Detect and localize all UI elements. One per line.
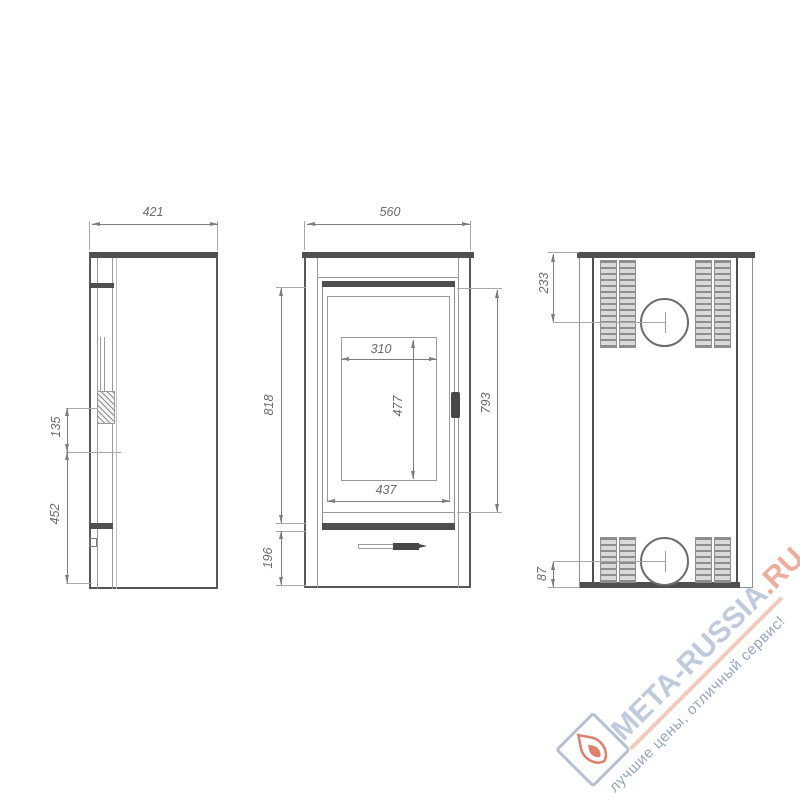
extension-line bbox=[553, 561, 666, 562]
back-side-panel-line bbox=[592, 258, 594, 588]
back-side-panel-line bbox=[736, 258, 738, 588]
dim-line-flue-top bbox=[553, 254, 554, 322]
arrowhead-down bbox=[551, 579, 555, 587]
dim-label-flue-top: 233 bbox=[537, 265, 551, 301]
vent-grille-bottom bbox=[695, 537, 712, 583]
vent-grille-top bbox=[714, 260, 731, 348]
vent-grille-top bbox=[619, 260, 636, 348]
vent-grille-top bbox=[600, 260, 617, 348]
extension-line bbox=[553, 322, 666, 323]
arrowhead-down bbox=[551, 314, 555, 322]
arrowhead-up bbox=[551, 562, 555, 570]
vent-grille-bottom bbox=[619, 537, 636, 583]
vent-grille-top bbox=[695, 260, 712, 348]
back-top-band bbox=[577, 252, 755, 258]
stove-dimension-drawing: 421 135 452 560 bbox=[0, 0, 800, 800]
arrowhead-up bbox=[551, 254, 555, 262]
dim-label-flue-bottom: 87 bbox=[535, 559, 549, 589]
extension-line bbox=[548, 587, 579, 588]
extension-line bbox=[548, 252, 579, 253]
vent-grille-bottom bbox=[714, 537, 731, 583]
vent-grille-bottom bbox=[600, 537, 617, 583]
